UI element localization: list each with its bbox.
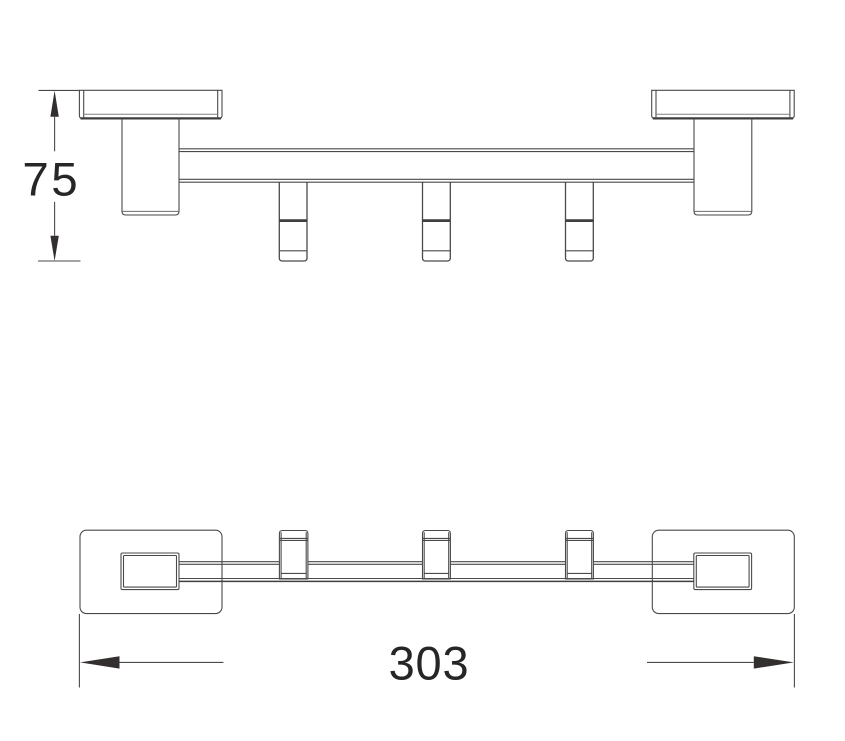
svg-text:303: 303 (389, 636, 470, 689)
svg-text:75: 75 (22, 153, 80, 206)
